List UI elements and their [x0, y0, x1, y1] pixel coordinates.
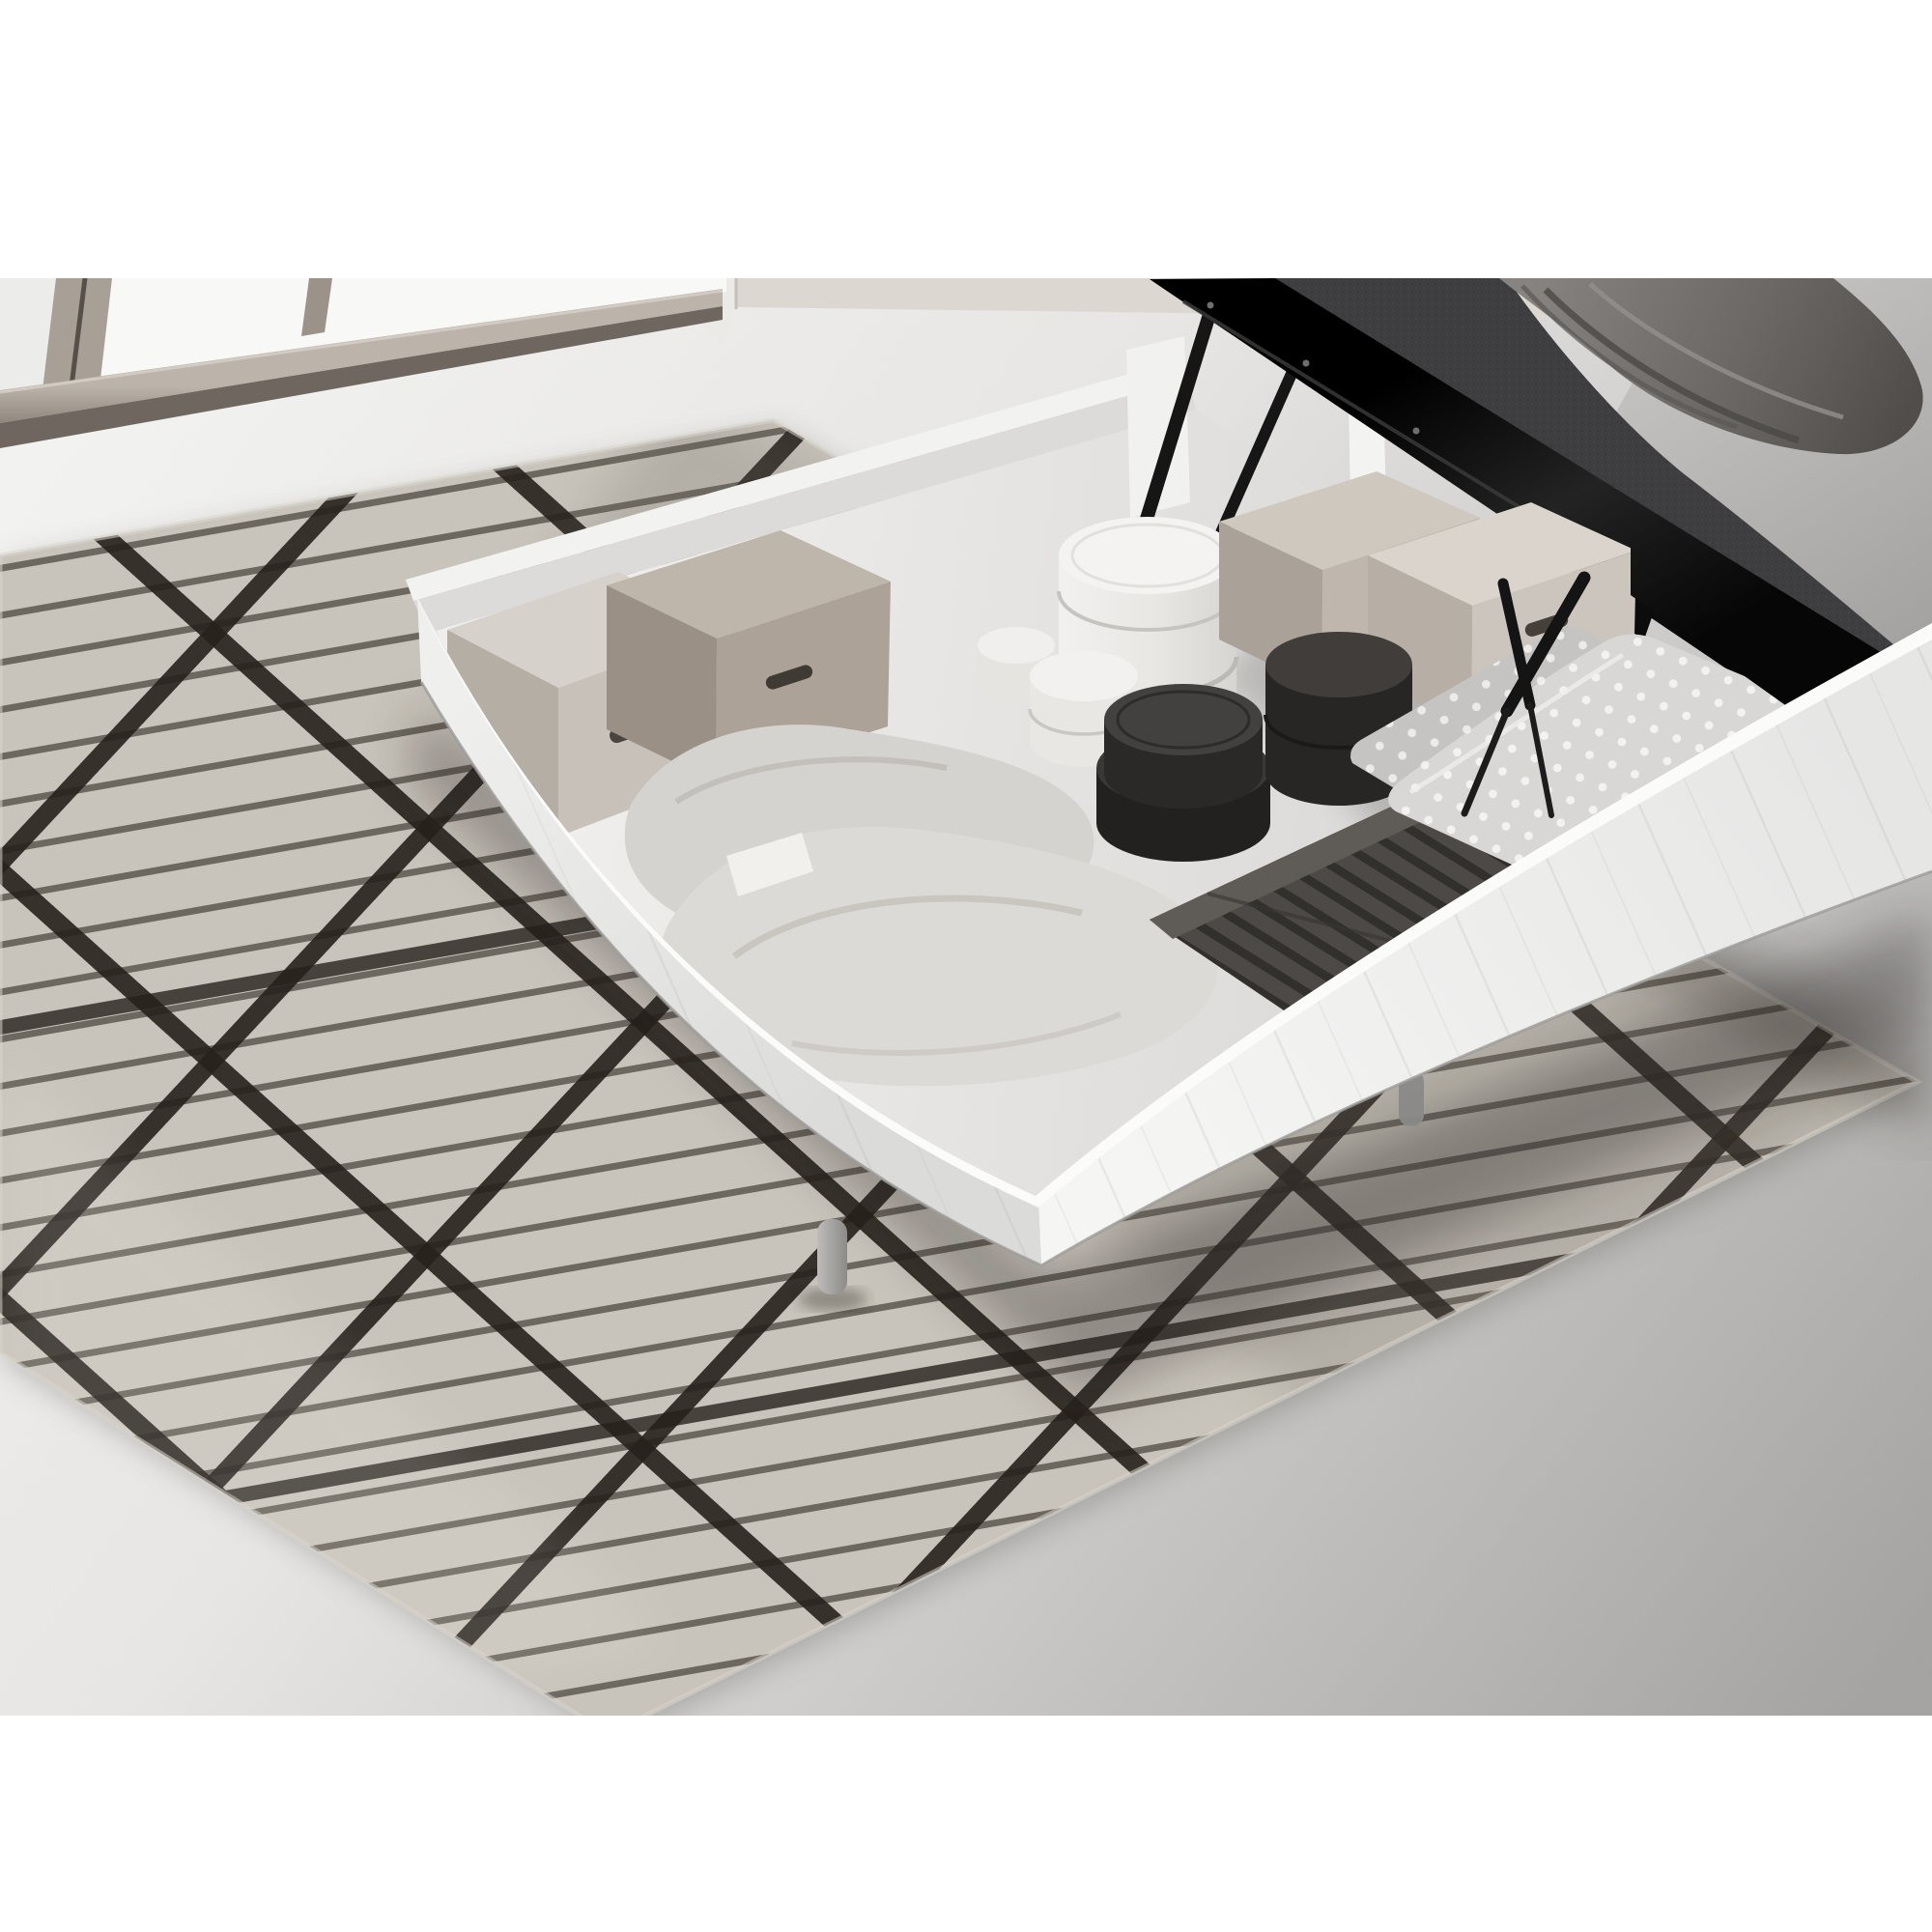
- bedroom-photo: [0, 278, 1932, 1716]
- bed-leg-front: [817, 1219, 847, 1294]
- platform-screw: [1413, 428, 1420, 435]
- hatbox-dark-stack: [1096, 684, 1270, 862]
- platform-screw: [1303, 360, 1310, 367]
- platform-screw: [1207, 302, 1214, 309]
- product-photo-page: [0, 0, 1932, 1932]
